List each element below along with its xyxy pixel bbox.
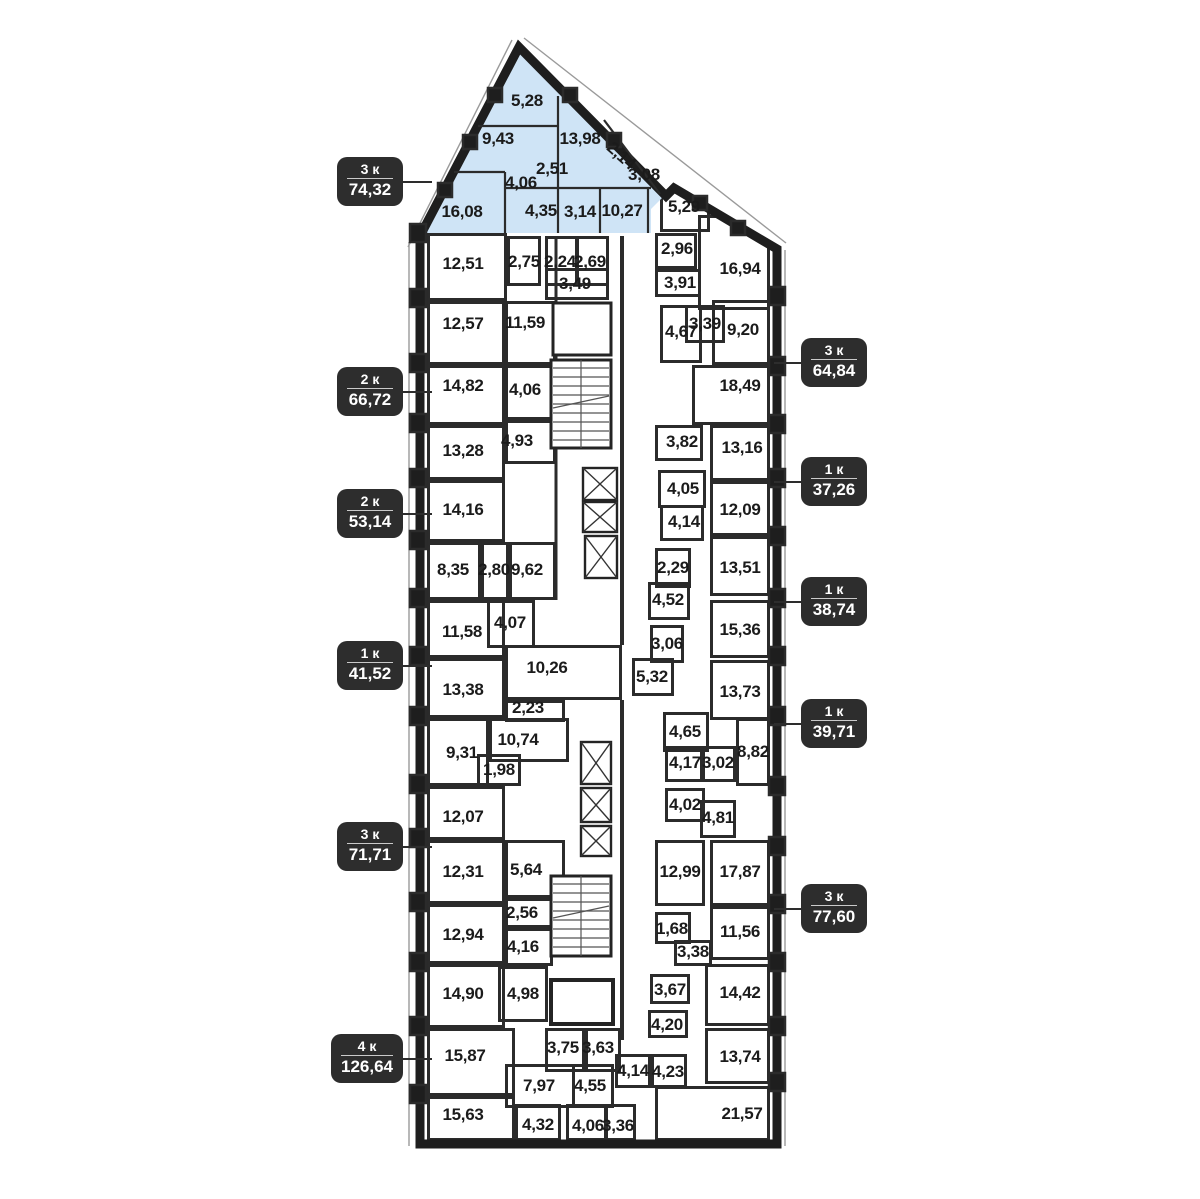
apartment-badge[interactable]: 2 к53,14 xyxy=(338,490,402,537)
room-area-label: 2,23 xyxy=(512,698,544,718)
room-area-label: 2,29 xyxy=(657,558,689,578)
room-area-label: 4,98 xyxy=(507,984,539,1004)
badge-divider xyxy=(347,510,393,511)
room-area-label: 2,51 xyxy=(536,159,568,179)
badge-divider xyxy=(811,598,857,599)
room-area-label: 4,07 xyxy=(494,613,526,633)
badge-divider xyxy=(347,843,393,844)
room-area-label: 13,51 xyxy=(719,558,760,578)
room-area-label: 4,05 xyxy=(667,479,699,499)
room-area-label: 3,49 xyxy=(559,274,591,294)
room-area-label: 12,99 xyxy=(659,862,700,882)
room-area-label: 5,32 xyxy=(636,667,668,687)
apartment-badge[interactable]: 2 к66,72 xyxy=(338,368,402,415)
apartment-badge[interactable]: 1 к38,74 xyxy=(802,578,866,625)
badge-rooms: 3 к xyxy=(361,826,380,842)
badge-rooms: 1 к xyxy=(825,703,844,719)
room-area-label: 13,38 xyxy=(442,680,483,700)
badge-area: 74,32 xyxy=(349,181,392,200)
badge-leader-line xyxy=(774,723,804,725)
badge-area: 77,60 xyxy=(813,908,856,927)
room-area-label: 13,74 xyxy=(719,1047,760,1067)
room-area-label: 4,06 xyxy=(505,173,537,193)
room-area-label: 2,24 xyxy=(544,252,576,272)
room-area-label: 3,75 xyxy=(547,1038,579,1058)
room-area-label: 4,06 xyxy=(509,380,541,400)
room-area-label: 8,35 xyxy=(437,560,469,580)
room-area-label: 12,09 xyxy=(719,500,760,520)
room-area-label: 2,80 xyxy=(478,560,510,580)
room-area-label: 3,67 xyxy=(654,980,686,1000)
room-area-label: 3,91 xyxy=(664,273,696,293)
room-area-label: 12,51 xyxy=(442,254,483,274)
room-area-label: 4,35 xyxy=(525,201,557,221)
room-area-label: 5,29 xyxy=(668,197,700,217)
apartment-badge[interactable]: 1 к41,52 xyxy=(338,642,402,689)
room-area-label: 4,14 xyxy=(668,512,700,532)
badge-rooms: 4 к xyxy=(358,1038,377,1054)
room-area-label: 10,27 xyxy=(601,201,642,221)
room-area-label: 13,73 xyxy=(719,682,760,702)
room-area-label: 4,93 xyxy=(501,431,533,451)
room-area-label: 4,02 xyxy=(669,795,701,815)
room-area-label: 15,63 xyxy=(442,1105,483,1125)
badge-rooms: 1 к xyxy=(361,645,380,661)
room-area-label: 4,20 xyxy=(651,1015,683,1035)
badge-area: 41,52 xyxy=(349,665,392,684)
badge-leader-line xyxy=(774,362,804,364)
room-area-label: 13,16 xyxy=(721,438,762,458)
badge-divider xyxy=(347,662,393,663)
room-area-label: 1,98 xyxy=(483,760,515,780)
room-area-label: 2,56 xyxy=(506,903,538,923)
room-area-label: 2,96 xyxy=(661,239,693,259)
room-area-label: 3,39 xyxy=(689,314,721,334)
room-area-label: 3,63 xyxy=(582,1038,614,1058)
room-area-label: 14,42 xyxy=(719,983,760,1003)
floor-plan: 5,289,4313,982,142,514,063,0816,084,353,… xyxy=(0,0,1200,1199)
room-area-label: 4,32 xyxy=(522,1115,554,1135)
badge-area: 71,71 xyxy=(349,846,392,865)
badge-divider xyxy=(811,359,857,360)
labels-layer: 5,289,4313,982,142,514,063,0816,084,353,… xyxy=(0,0,1200,1199)
room-area-label: 12,94 xyxy=(442,925,483,945)
badge-divider xyxy=(811,905,857,906)
badge-area: 64,84 xyxy=(813,362,856,381)
badge-leader-line xyxy=(400,181,432,183)
badge-rooms: 2 к xyxy=(361,493,380,509)
room-area-label: 21,57 xyxy=(721,1104,762,1124)
room-area-label: 4,55 xyxy=(574,1076,606,1096)
badge-leader-line xyxy=(774,908,804,910)
room-area-label: 18,49 xyxy=(719,376,760,396)
room-area-label: 5,64 xyxy=(510,860,542,880)
badge-divider xyxy=(347,388,393,389)
room-area-label: 16,94 xyxy=(719,259,760,279)
badge-leader-line xyxy=(400,1058,432,1060)
badge-leader-line xyxy=(774,481,804,483)
room-area-label: 7,97 xyxy=(523,1076,555,1096)
room-area-label: 17,87 xyxy=(719,862,760,882)
room-area-label: 15,87 xyxy=(444,1046,485,1066)
apartment-badge[interactable]: 1 к37,26 xyxy=(802,458,866,505)
badge-leader-line xyxy=(400,846,432,848)
badge-leader-line xyxy=(400,391,432,393)
badge-rooms: 1 к xyxy=(825,581,844,597)
apartment-badge[interactable]: 4 к126,64 xyxy=(332,1035,402,1082)
room-area-label: 14,16 xyxy=(442,500,483,520)
apartment-badge[interactable]: 3 к74,32 xyxy=(338,158,402,205)
room-area-label: 4,23 xyxy=(652,1062,684,1082)
room-area-label: 12,31 xyxy=(442,862,483,882)
badge-leader-line xyxy=(400,513,432,515)
apartment-badge[interactable]: 1 к39,71 xyxy=(802,700,866,747)
badge-rooms: 1 к xyxy=(825,461,844,477)
apartment-badge[interactable]: 3 к64,84 xyxy=(802,339,866,386)
badge-leader-line xyxy=(400,665,432,667)
room-area-label: 9,31 xyxy=(446,743,478,763)
room-area-label: 14,90 xyxy=(442,984,483,1004)
room-area-label: 4,81 xyxy=(702,808,734,828)
badge-rooms: 3 к xyxy=(825,888,844,904)
room-area-label: 8,82 xyxy=(737,742,769,762)
room-area-label: 9,43 xyxy=(482,129,514,149)
room-area-label: 3,82 xyxy=(666,432,698,452)
apartment-badge[interactable]: 3 к77,60 xyxy=(802,885,866,932)
room-area-label: 4,17 xyxy=(669,753,701,773)
room-area-label: 3,02 xyxy=(702,753,734,773)
badge-area: 126,64 xyxy=(341,1058,393,1077)
room-area-label: 4,16 xyxy=(507,937,539,957)
room-area-label: 11,58 xyxy=(442,622,482,642)
room-area-label: 11,59 xyxy=(505,313,545,333)
badge-divider xyxy=(811,478,857,479)
room-area-label: 12,07 xyxy=(442,807,483,827)
room-area-label: 3,06 xyxy=(651,634,683,654)
badge-area: 66,72 xyxy=(349,391,392,410)
badge-divider xyxy=(811,720,857,721)
room-area-label: 13,28 xyxy=(442,441,483,461)
room-area-label: 2,69 xyxy=(574,252,606,272)
room-area-label: 4,52 xyxy=(652,590,684,610)
room-area-label: 15,36 xyxy=(719,620,760,640)
room-area-label: 12,57 xyxy=(442,314,483,334)
room-area-label: 4,06 xyxy=(572,1116,604,1136)
badge-leader-line xyxy=(774,601,804,603)
room-area-label: 2,75 xyxy=(508,252,540,272)
room-area-label: 9,20 xyxy=(727,320,759,340)
room-area-label: 1,68 xyxy=(656,919,688,939)
badge-divider xyxy=(341,1055,393,1056)
badge-rooms: 3 к xyxy=(361,161,380,177)
badge-divider xyxy=(347,178,393,179)
room-area-label: 9,62 xyxy=(511,560,543,580)
badge-area: 53,14 xyxy=(349,513,392,532)
badge-area: 38,74 xyxy=(813,601,856,620)
room-area-label: 3,14 xyxy=(564,202,596,222)
room-area-label: 14,82 xyxy=(442,376,483,396)
room-area-label: 10,26 xyxy=(526,658,567,678)
badge-area: 37,26 xyxy=(813,481,856,500)
room-area-label: 3,38 xyxy=(677,942,709,962)
badge-area: 39,71 xyxy=(813,723,856,742)
room-area-label: 11,56 xyxy=(720,922,760,942)
room-area-label: 3,08 xyxy=(628,165,660,185)
room-area-label: 10,74 xyxy=(497,730,538,750)
apartment-badge[interactable]: 3 к71,71 xyxy=(338,823,402,870)
room-area-label: 13,98 xyxy=(559,129,600,149)
room-area-label: 4,14 xyxy=(617,1061,649,1081)
room-area-label: 5,28 xyxy=(511,91,543,111)
room-area-label: 3,36 xyxy=(602,1116,634,1136)
badge-rooms: 2 к xyxy=(361,371,380,387)
badge-rooms: 3 к xyxy=(825,342,844,358)
room-area-label: 4,65 xyxy=(669,722,701,742)
room-area-label: 16,08 xyxy=(441,202,482,222)
